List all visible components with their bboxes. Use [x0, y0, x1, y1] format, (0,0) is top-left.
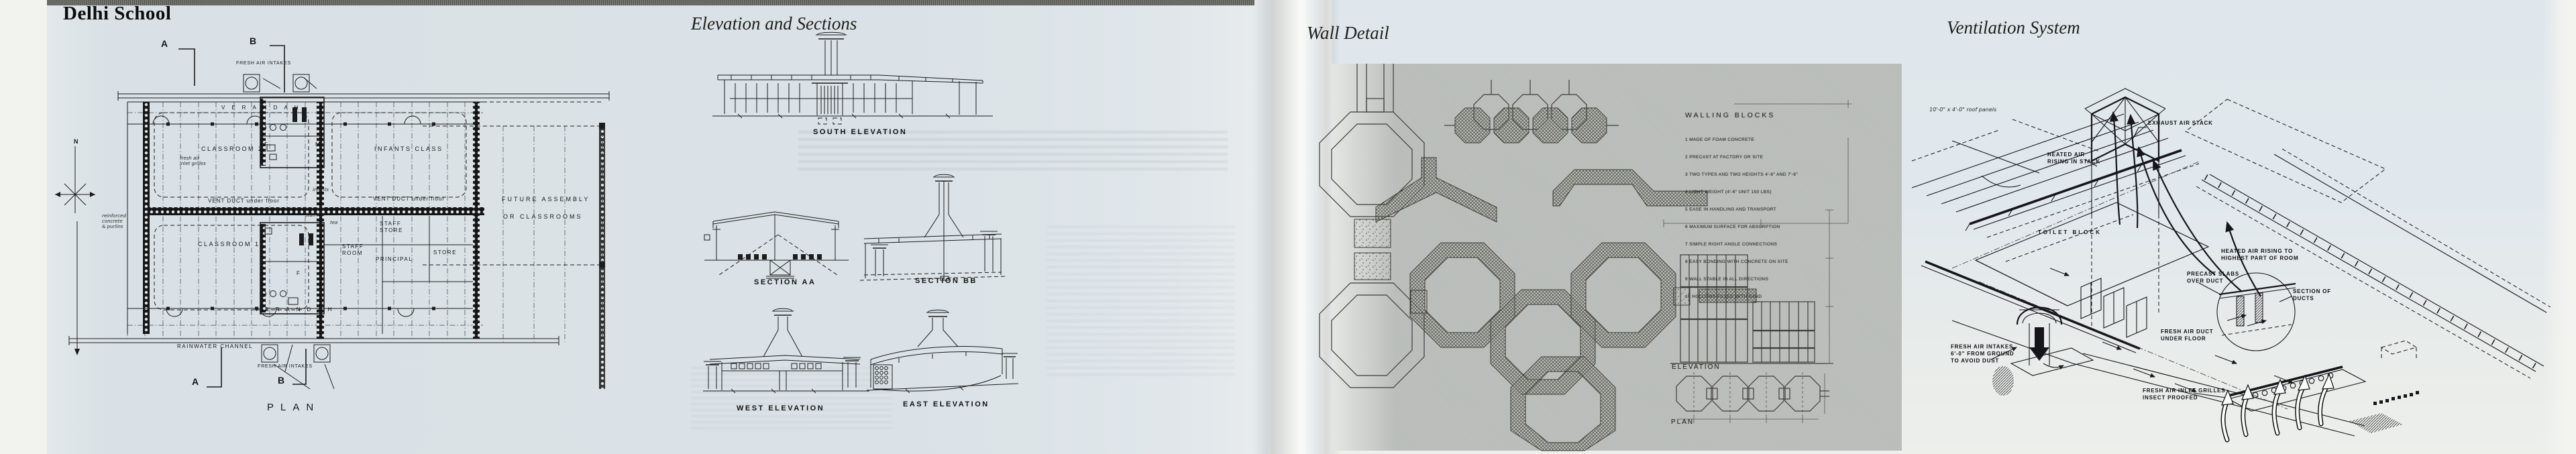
section-bb-label: SECTION BB — [915, 278, 977, 285]
infants-class-label: INFANTS CLASS — [374, 146, 443, 153]
fresh-air-intakes-note: FRESH AIR INTAKES 6'-0" FROM GROUND TO A… — [1951, 343, 2014, 365]
roof-beams-right — [2186, 99, 2551, 378]
walling-blocks-item: 9 WALL STABLE IN ALL DIRECTIONS — [1685, 275, 1829, 284]
octagon-chain — [1444, 80, 1619, 143]
wall-detail-title: Wall Detail — [1307, 23, 1389, 44]
verandah-label-bottom: VERANDAH — [255, 306, 338, 313]
section-marker-a-top: A — [161, 40, 168, 48]
walling-blocks-item: 3 TWO TYPES AND TWO HEIGHTS 4'-6" AND 7'… — [1685, 170, 1829, 179]
verandah-label: VERANDAH — [221, 104, 305, 111]
north-label: N — [74, 138, 78, 146]
walling-blocks-item: 8 EASY BONDING WITH CONCRETE ON SITE — [1685, 258, 1829, 266]
inlet-grilles-label: FRESH AIR INLET GRILLES INSECT PROOFED — [2143, 388, 2225, 402]
west-elevation-label: WEST ELEVATION — [737, 405, 824, 412]
f-label-top: F — [264, 141, 268, 148]
infants-note: infants — [313, 187, 329, 192]
west-elevation-drawing — [703, 308, 869, 393]
page-title: Delhi School — [63, 3, 172, 25]
concrete-note: reinforced concrete & purlins — [102, 213, 126, 229]
elevations-drawing — [678, 13, 1248, 454]
classroom-2-label: CLASSROOM 2 — [201, 146, 264, 153]
section-of-ducts-label: SECTION OF DUCTS — [2293, 288, 2331, 302]
walling-blocks-item: 4 LIGHT WEIGHT (4'-6" UNIT 150 LBS) — [1685, 188, 1829, 196]
east-elevation-drawing — [867, 310, 1018, 393]
walling-blocks-item: 10 HOLLOWS FILLED WITH SAND — [1685, 292, 1829, 301]
staff-note: staff — [305, 213, 316, 218]
fresh-air-duct-label: FRESH AIR DUCT UNDER FLOOR — [2161, 329, 2213, 343]
heated-air-stack-label: HEATED AIR RISING IN STACK — [2047, 152, 2100, 166]
f-label-bottom: F — [297, 270, 301, 277]
precast-slabs-label: PRECAST SLABS OVER DUCT — [2187, 271, 2239, 285]
east-elevation-label: EAST ELEVATION — [903, 401, 989, 408]
plan-drawing — [47, 27, 631, 429]
section-aa-label: SECTION AA — [754, 279, 816, 286]
page-top-edge — [47, 0, 1254, 5]
exhaust-air-stack-label: EXHAUST AIR STACK — [2148, 120, 2213, 127]
grille-duct — [2194, 341, 2419, 440]
half-blocks — [1376, 158, 1707, 222]
fresh-air-intakes-label: FRESH AIR INTAKES — [236, 60, 291, 66]
future-assembly-label: FUTURE ASSEMBLY — [502, 196, 590, 203]
section-aa-drawing — [704, 212, 849, 278]
walling-blocks-item: 1 MADE OF FOAM CONCRETE — [1685, 135, 1829, 144]
octagon-blocks-outline — [1320, 64, 1424, 388]
grilles-note: fresh air inlet grilles — [180, 156, 206, 166]
staff-room-label: STAFF ROOM — [342, 243, 364, 257]
roof-panels — [1912, 114, 2199, 237]
section-marker-b-top: B — [250, 38, 257, 45]
section-marker-a-bottom: A — [192, 378, 199, 386]
toilet-block-label: TOILET BLOCK — [2038, 229, 2102, 237]
walling-blocks-item: 6 MAXIMUM SURFACE FOR ABSORPTION — [1685, 223, 1829, 231]
south-elevation-drawing — [712, 32, 993, 124]
rainwater-channel-label: RAINWATER CHANNEL — [177, 343, 253, 350]
module-grid — [127, 102, 565, 342]
store-label: STORE — [433, 249, 457, 256]
walling-blocks-list: 1 MADE OF FOAM CONCRETE 2 PRECAST AT FAC… — [1685, 127, 1829, 310]
walling-blocks-item: 2 PRECAST AT FACTORY OR SITE — [1685, 153, 1829, 162]
block-plan-row — [1676, 372, 1829, 423]
staff-store-label: STAFF STORE — [380, 221, 403, 234]
north-compass — [55, 146, 95, 355]
classroom-1-label: CLASSROOM 1 — [198, 241, 260, 248]
roof-panels-note: 10'-0" x 4'-0" roof panels — [1929, 107, 1996, 113]
fresh-air-intakes-label-bottom: FRESH AIR INTAKES — [258, 363, 313, 370]
vent-duct-left-label: VENT DUCT under floor — [208, 198, 280, 205]
wall-plan-caption: PLAN — [1671, 418, 1694, 426]
walling-blocks-heading: WALLING BLOCKS — [1685, 111, 1775, 119]
rainwater-channels — [69, 91, 609, 372]
m-label-bottom: M — [321, 270, 326, 276]
section-bb-drawing — [860, 174, 1008, 280]
walling-blocks-item: 5 EASE IN HANDLING AND TRANSPORT — [1685, 205, 1829, 214]
section-marker-b-bottom: B — [278, 377, 285, 384]
ventilation-title: Ventilation System — [1947, 17, 2080, 38]
principal-label: PRINCIPAL — [376, 256, 413, 263]
tea-note: tea — [330, 220, 337, 225]
or-classrooms-label: OR CLASSROOMS — [503, 213, 583, 221]
heated-air-room-label: HEATED AIR RISING TO HIGHEST PART OF ROO… — [2221, 248, 2298, 262]
book-gutter — [1253, 0, 1340, 454]
plan-caption: PLAN — [267, 404, 320, 411]
m-label-top: M — [315, 141, 321, 148]
book-spread: Delhi School — [0, 0, 2576, 454]
wall-elevation-caption: ELEVATION — [1672, 363, 1721, 371]
walling-blocks-item: 7 SIMPLE RIGHT ANGLE CONNECTIONS — [1685, 240, 1829, 249]
vent-duct-right-label: VENT DUCT under floor — [373, 196, 445, 203]
south-elevation-label: SOUTH ELEVATION — [813, 129, 907, 136]
